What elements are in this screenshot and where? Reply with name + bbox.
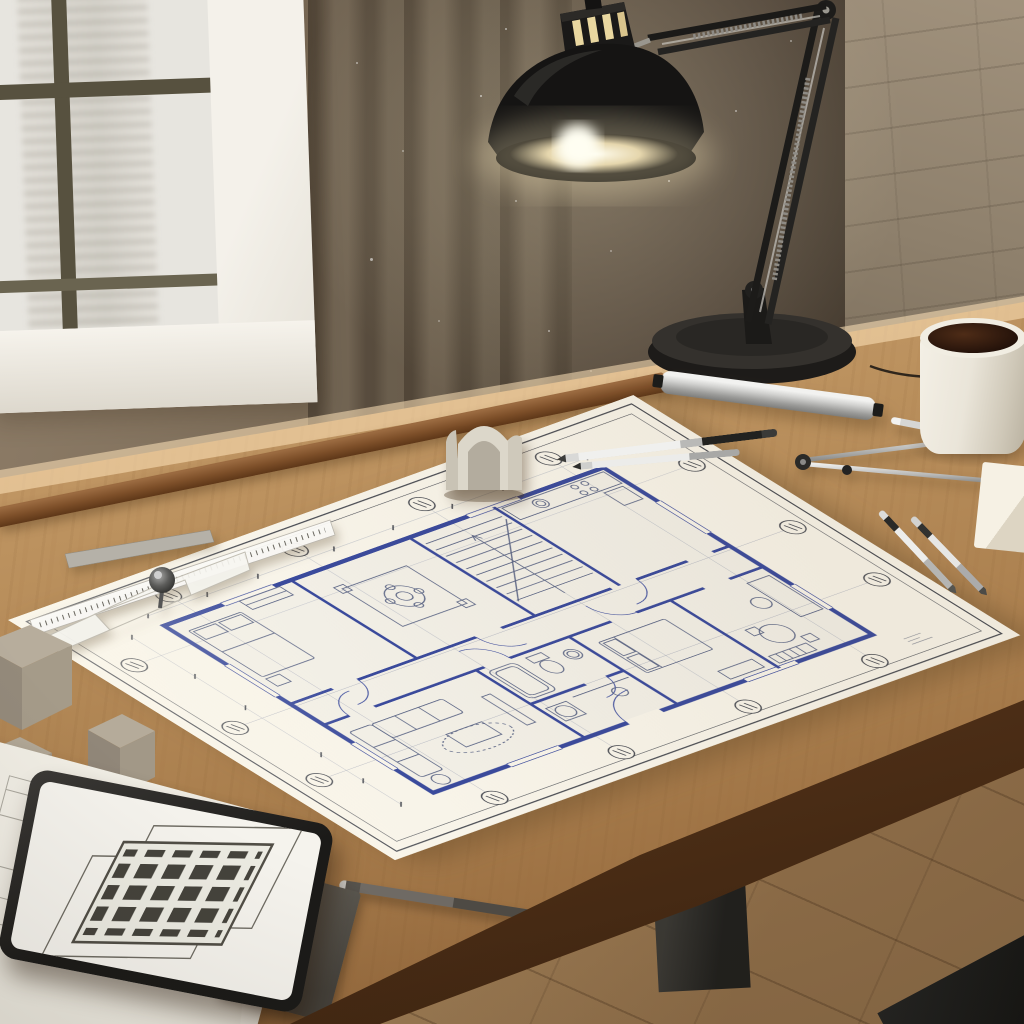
bathroom-fixtures <box>487 642 651 721</box>
staircase <box>426 517 603 607</box>
window-sill <box>0 320 317 413</box>
dust-particle <box>402 150 404 152</box>
lamp-bulb <box>556 124 600 168</box>
center-room-motif <box>334 562 476 631</box>
clay-arch-model <box>438 402 530 502</box>
dust-particle <box>438 320 440 322</box>
study-furniture <box>686 575 862 663</box>
architect-desk-scene <box>0 0 1024 1024</box>
coffee-mug <box>920 318 1024 454</box>
window <box>0 0 317 414</box>
dust-particle <box>356 62 358 64</box>
coffee <box>928 323 1018 353</box>
bedroom2-furniture <box>598 614 764 696</box>
living-room-furniture <box>349 686 566 787</box>
foam-block <box>974 462 1024 556</box>
dust-particle <box>370 258 373 261</box>
knob <box>149 567 175 593</box>
